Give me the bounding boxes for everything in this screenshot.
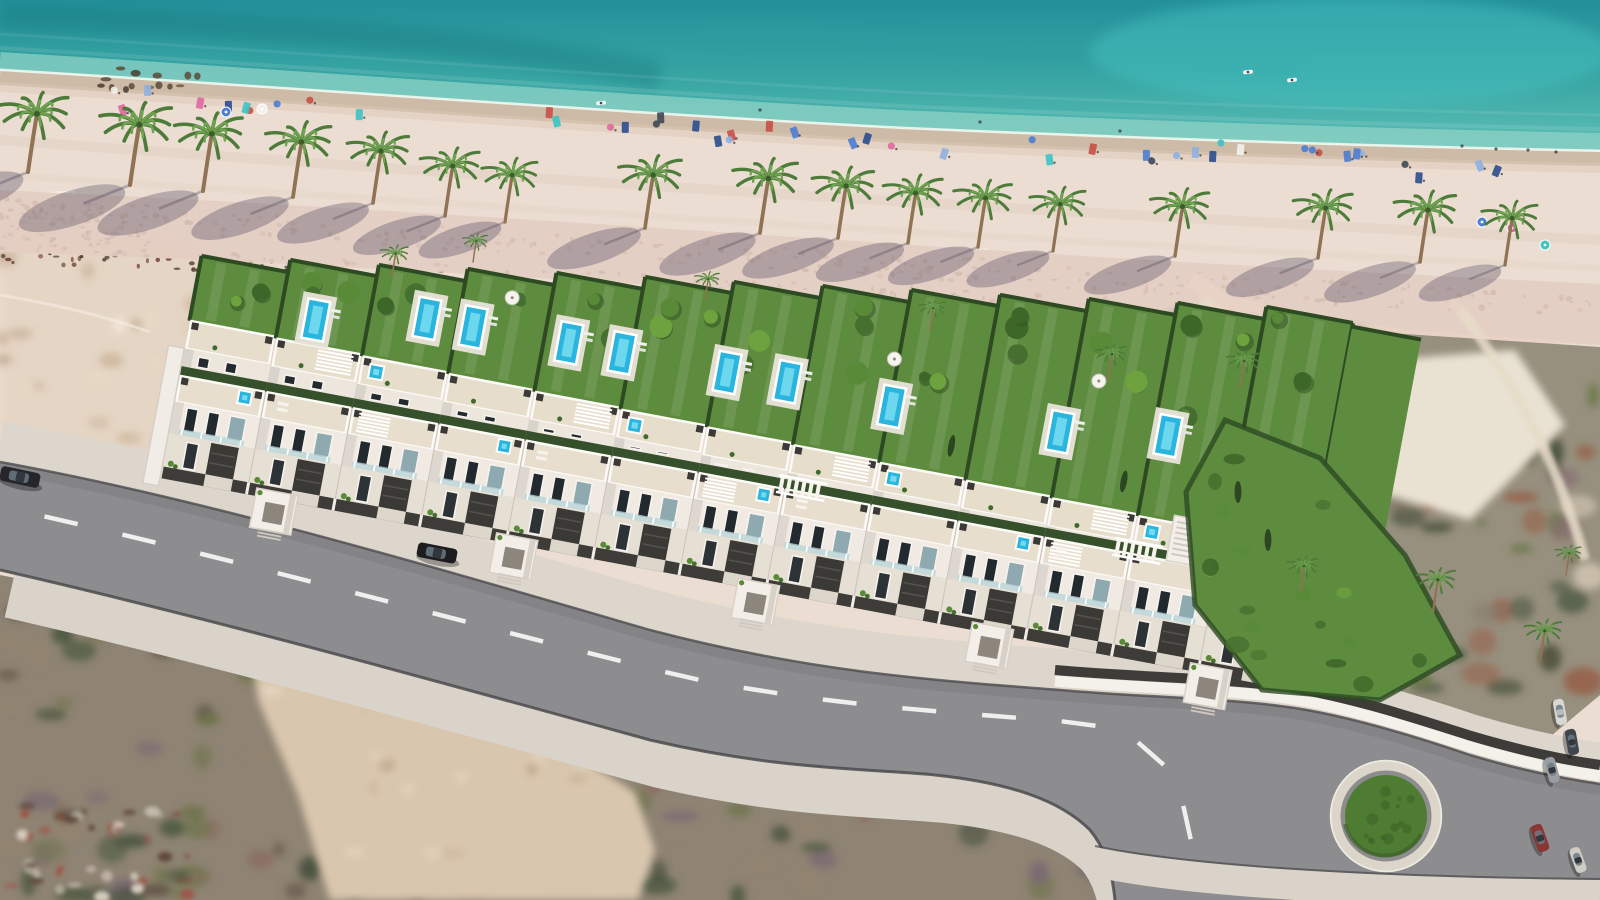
swimmer-dot [978, 120, 981, 123]
aerial-villa-development-render [0, 0, 1600, 900]
garage-door [551, 508, 584, 545]
garage-door [205, 443, 238, 480]
garage-door [378, 475, 411, 512]
garage-door [638, 524, 671, 561]
garage-door [811, 556, 844, 593]
swimmer-dot [758, 108, 761, 111]
swimmer-dot [1460, 144, 1463, 147]
render-viewport [0, 0, 1600, 900]
swimmer-dot [1554, 150, 1557, 153]
cypress-tree [1265, 529, 1272, 551]
garage-door [724, 540, 757, 577]
swimmer-dot [1494, 147, 1497, 150]
swimmer-dot [1526, 148, 1529, 151]
garage-door [1157, 621, 1190, 658]
garage-door [897, 572, 930, 609]
roundabout [1331, 761, 1441, 871]
cypress-tree [1235, 481, 1242, 503]
garage-door [1070, 605, 1103, 642]
garage-door [465, 491, 498, 528]
garage-door [292, 459, 325, 496]
swimmer-dot [1118, 129, 1121, 132]
garage-door [984, 589, 1017, 626]
